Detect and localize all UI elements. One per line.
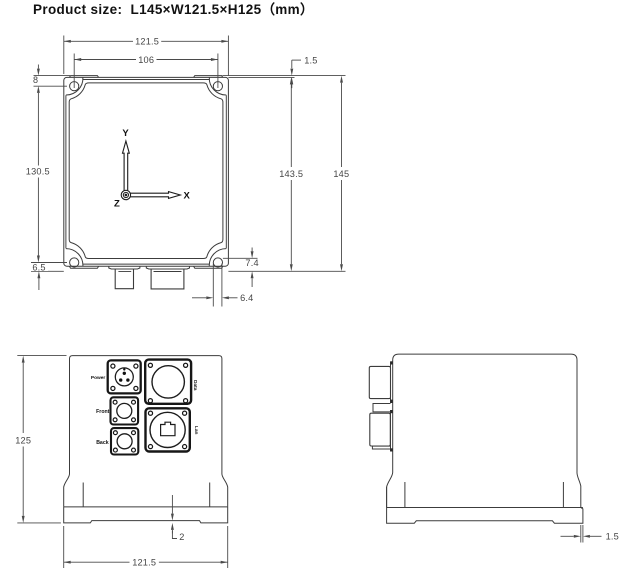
- svg-text:Product size: L145×W121.5×H12: Product size: L145×W121.5×H125（mm）: [33, 2, 314, 17]
- svg-text:Z: Z: [114, 199, 120, 210]
- svg-text:Back: Back: [96, 440, 109, 446]
- svg-text:130.5: 130.5: [26, 167, 50, 177]
- svg-text:121.5: 121.5: [132, 558, 156, 568]
- svg-text:Front: Front: [96, 409, 110, 415]
- svg-text:Lan: Lan: [193, 426, 199, 435]
- svg-text:Data: Data: [192, 380, 198, 391]
- svg-text:1.5: 1.5: [304, 56, 317, 66]
- svg-text:143.5: 143.5: [279, 169, 303, 179]
- svg-text:8: 8: [33, 75, 38, 85]
- svg-text:X: X: [184, 190, 191, 201]
- svg-text:121.5: 121.5: [135, 37, 159, 47]
- svg-text:6.4: 6.4: [240, 293, 253, 303]
- svg-text:Power: Power: [91, 375, 106, 381]
- svg-text:2: 2: [179, 532, 184, 542]
- svg-text:1.5: 1.5: [606, 532, 619, 542]
- svg-text:106: 106: [138, 55, 154, 65]
- svg-text:Y: Y: [122, 128, 129, 139]
- svg-text:125: 125: [15, 435, 31, 445]
- svg-text:145: 145: [333, 169, 349, 179]
- svg-text:6.5: 6.5: [32, 263, 45, 273]
- svg-text:7.4: 7.4: [245, 258, 258, 268]
